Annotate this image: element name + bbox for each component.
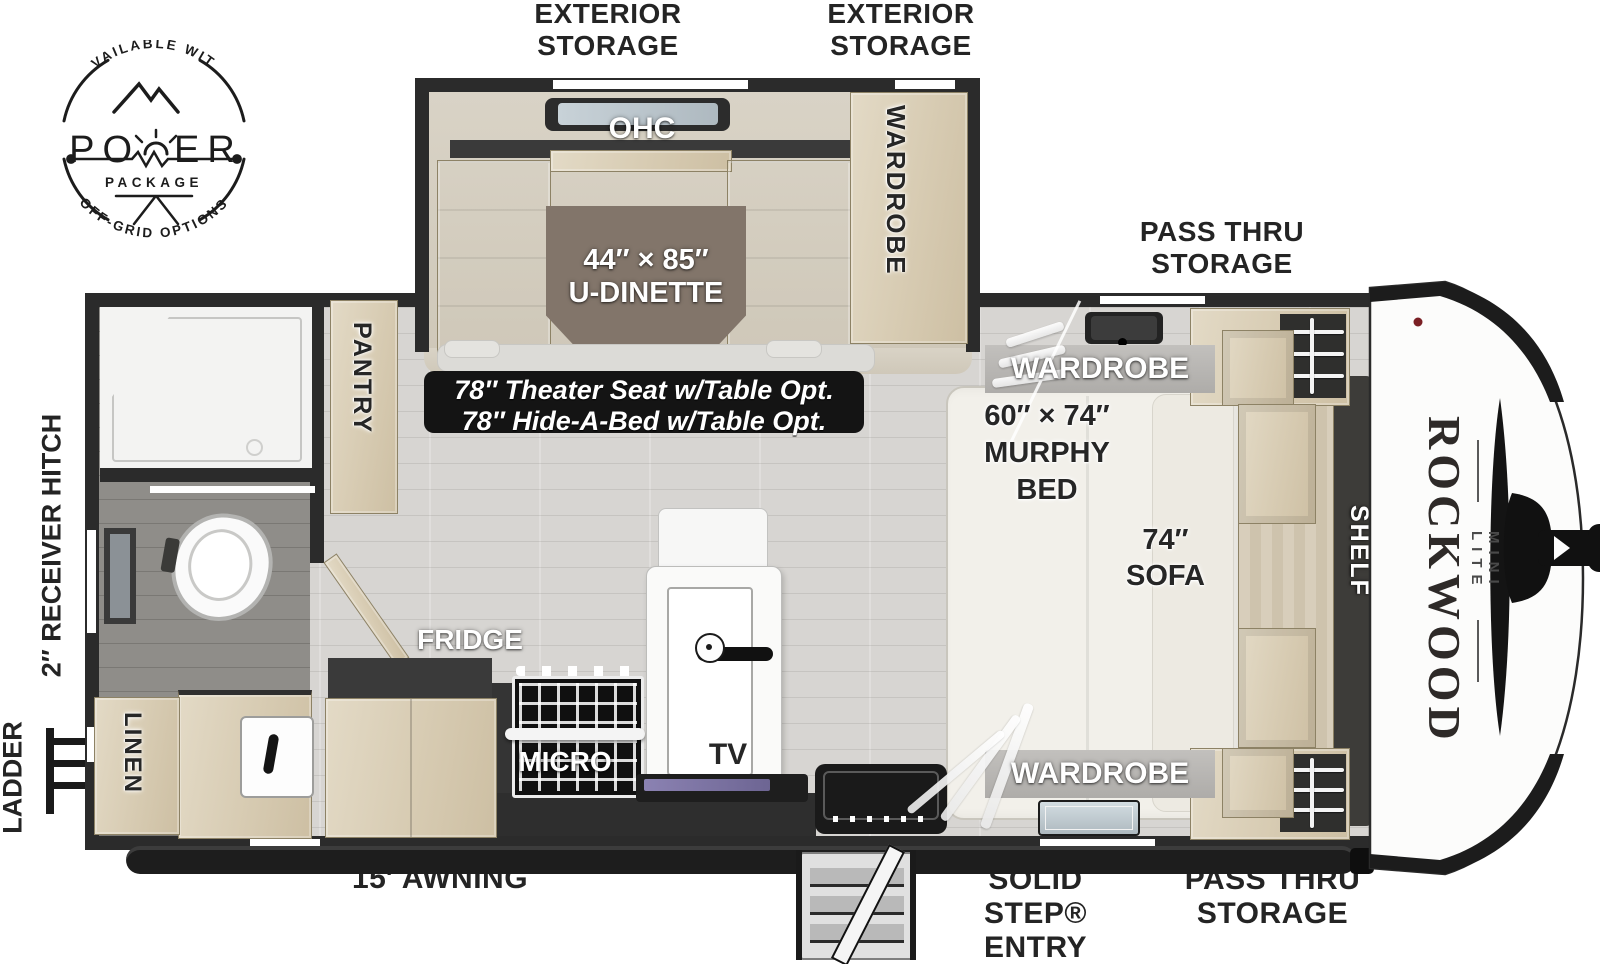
fridge-top <box>328 658 492 698</box>
label-line: STORAGE <box>810 30 992 62</box>
bathroom-window <box>104 528 136 624</box>
rod-support <box>1310 758 1314 828</box>
awning-tube <box>126 846 1356 874</box>
step-rail <box>796 850 802 960</box>
theater-seat-outline <box>444 340 500 358</box>
front-wardrobe-top-label: WARDROBE <box>985 352 1215 386</box>
front-wardrobe-bottom-label: WARDROBE <box>985 757 1215 791</box>
theater-seat-outline <box>766 340 822 358</box>
fridge-cabinet <box>325 698 497 838</box>
brand-name: ROCKWOOD <box>1418 408 1471 753</box>
power-package-logo: AVAILABLE WITH OFF-GRID OPTIONS PO ER PA… <box>54 40 254 240</box>
hitch-coupler <box>1588 524 1600 572</box>
bathroom-sink <box>240 716 314 798</box>
svg-text:AVAILABLE WITH: AVAILABLE WITH <box>54 40 219 71</box>
sun-icon <box>145 143 167 154</box>
option-line: 78″ Hide-A-Bed w/Table Opt. <box>424 406 864 437</box>
fridge-label: FRIDGE <box>405 624 535 656</box>
logo-top-arc-text: AVAILABLE WITH <box>54 40 219 71</box>
murphy-size-label: 60″ × 74″ <box>952 398 1142 435</box>
step-rail <box>910 850 916 960</box>
exterior-storage-right-label: EXTERIOR STORAGE <box>810 0 992 62</box>
ladder-icon <box>46 728 54 814</box>
options-callout: 78″ Theater Seat w/Table Opt. 78″ Hide-A… <box>424 371 864 433</box>
receiver-hitch-label: 2″ RECEIVER HITCH <box>37 391 68 701</box>
mountains-icon <box>114 84 178 112</box>
front-cabinet-top <box>1238 404 1316 524</box>
shower-pan-outline <box>112 317 302 462</box>
exterior-storage-door-marker <box>895 80 955 89</box>
roof-vent-inner <box>1091 316 1157 340</box>
front-cabinet-bottom <box>1238 628 1316 748</box>
wardrobe-door-top <box>1222 330 1294 406</box>
shower-drain <box>246 439 263 456</box>
roof-vent <box>1085 312 1163 344</box>
pass-thru-door-marker <box>1100 296 1205 304</box>
pantry-label: PANTRY <box>347 322 376 494</box>
slideout-wardrobe-label: WARDROBE <box>880 105 911 335</box>
shower <box>100 307 312 470</box>
svg-text:OFF-GRID OPTIONS: OFF-GRID OPTIONS <box>77 195 232 240</box>
brand-rule <box>1477 440 1479 502</box>
slideout-wall-right <box>966 78 980 352</box>
label-line: EXTERIOR <box>810 0 992 30</box>
logo-power-po: PO <box>69 129 140 171</box>
entry-door-top-panel <box>658 508 768 574</box>
stove-knobs <box>516 666 634 676</box>
ohc-label: OHC <box>597 112 687 146</box>
sofa-size-label: 74″ <box>1118 522 1213 558</box>
tv-unit <box>636 774 808 802</box>
glass-top-griddle <box>1038 800 1140 836</box>
glass-top-outline <box>1045 806 1133 830</box>
tv-label: TV <box>696 738 760 772</box>
label-line: STORAGE <box>517 30 699 62</box>
logo-package-text: PACKAGE <box>105 175 203 190</box>
label-line: STORAGE <box>1122 248 1322 280</box>
dinette-name-label: U-DINETTE <box>546 277 746 310</box>
slideout-wall-left <box>415 78 429 352</box>
label-line: PASS THRU <box>1122 216 1322 248</box>
dinette-size-label: 44″ × 85″ <box>546 244 746 277</box>
dinette-back-bench <box>550 150 732 172</box>
exterior-storage-door-marker <box>553 80 748 89</box>
ladder-label: LADDER <box>0 708 29 848</box>
linen-label: LINEN <box>118 712 146 822</box>
ladder-rung <box>54 782 88 789</box>
murphy-bed-label: 60″ × 74″ MURPHY BED <box>952 398 1142 509</box>
door-lock-pin <box>706 644 712 650</box>
shower-wall <box>100 468 324 482</box>
oven-handle <box>505 728 645 740</box>
micro-label: MICRO <box>506 746 624 778</box>
solar-panel-icon <box>116 196 192 224</box>
ladder-rung <box>54 760 88 767</box>
tv-screen <box>644 779 770 791</box>
brand-rule <box>1477 620 1479 682</box>
label-line: EXTERIOR <box>517 0 699 30</box>
logo-bottom-arc-text: OFF-GRID OPTIONS <box>77 195 232 240</box>
label-line: ENTRY <box>938 931 1133 964</box>
ladder-rung <box>54 738 88 745</box>
shower-door-track <box>150 486 315 493</box>
option-line: 78″ Theater Seat w/Table Opt. <box>424 375 864 406</box>
dinette-bench-left <box>437 160 551 354</box>
rod-support <box>1310 318 1314 394</box>
brand-model: MINI LITE <box>1468 505 1502 617</box>
logo-power-er: ER <box>174 129 243 171</box>
fridge-door-seam <box>410 699 412 837</box>
solid-step-entry-label: SOLID STEP® ENTRY <box>938 863 1133 964</box>
window-marker <box>87 530 96 633</box>
floorplan-canvas: AVAILABLE WITH OFF-GRID OPTIONS PO ER PA… <box>0 0 1600 964</box>
clearance-light <box>1414 318 1423 327</box>
toilet <box>151 503 276 628</box>
sofa-word-label: SOFA <box>1118 558 1213 594</box>
sink-rail-dots <box>833 816 929 822</box>
dinette-label: 44″ × 85″ U-DINETTE <box>546 244 746 310</box>
door-lock-icon <box>695 633 725 663</box>
murphy-word-label: MURPHY <box>952 435 1142 472</box>
label-line: STORAGE <box>1155 897 1390 931</box>
exterior-storage-left-label: EXTERIOR STORAGE <box>517 0 699 62</box>
wardrobe-door-bottom <box>1222 748 1294 818</box>
murphy-word-label: BED <box>952 472 1142 509</box>
pass-thru-storage-top-label: PASS THRU STORAGE <box>1122 216 1322 280</box>
sofa-label: 74″ SOFA <box>1118 522 1213 594</box>
bathroom-window-glass <box>110 534 130 618</box>
bathroom-wall <box>310 293 324 563</box>
